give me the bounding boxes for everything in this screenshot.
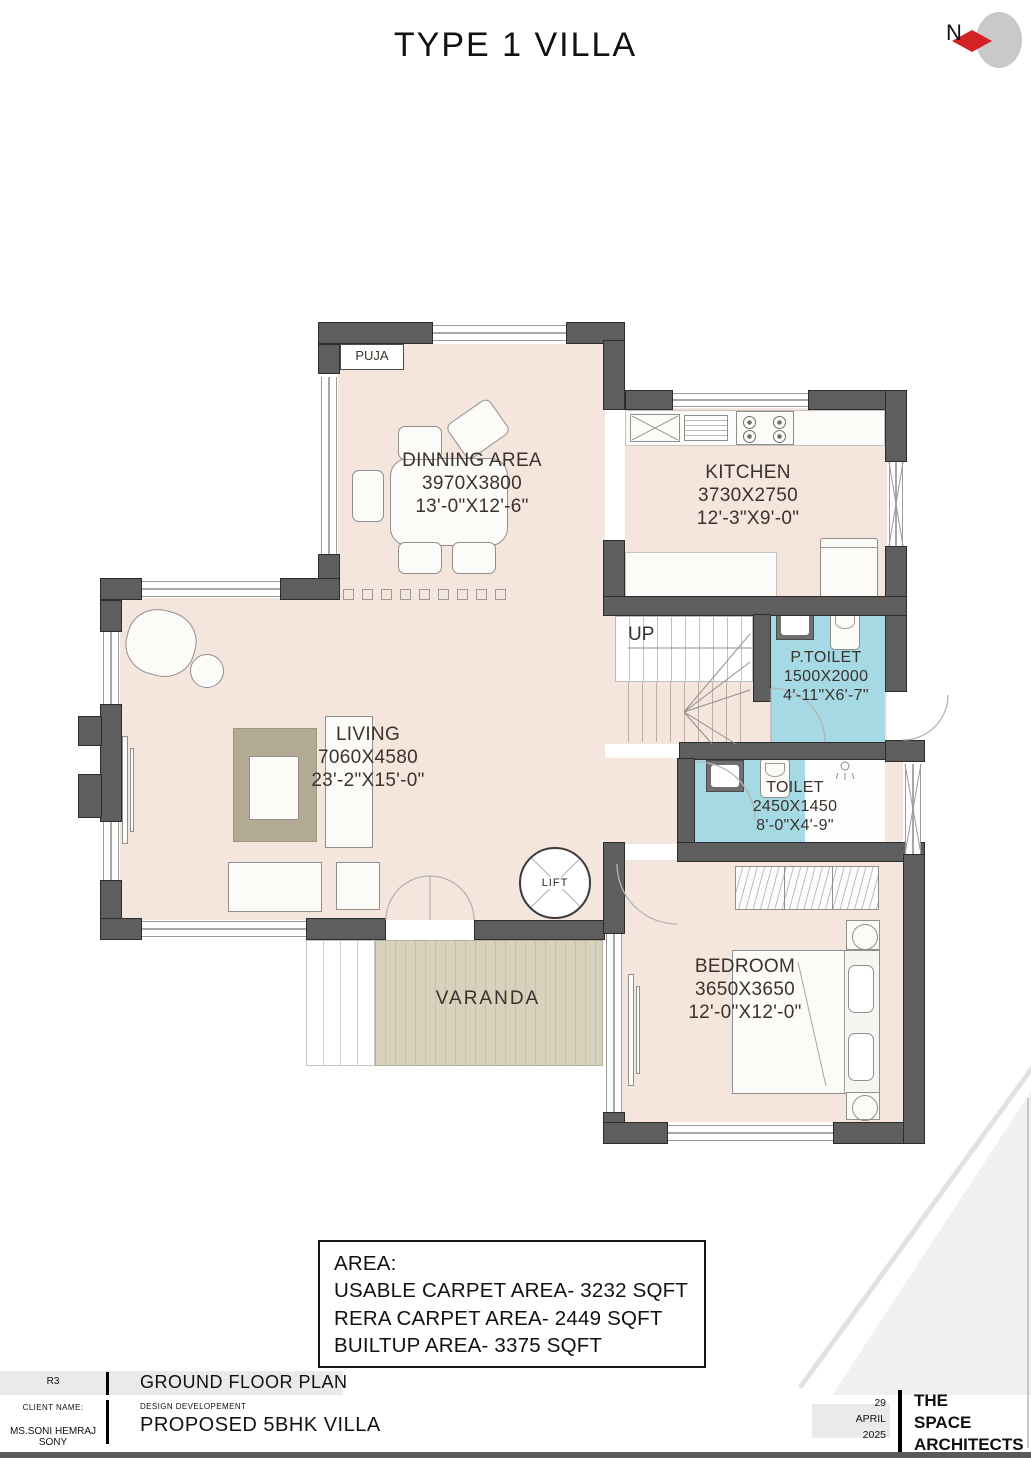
area-usable: USABLE CARPET AREA- 3232 SQFT	[334, 1277, 690, 1304]
lift[interactable]: LIFT	[519, 847, 591, 919]
wall	[318, 344, 340, 374]
table-circle	[852, 924, 878, 950]
room-label-puja: PUJA	[340, 348, 404, 363]
screen-square	[438, 589, 449, 600]
room-name: DINNING AREA	[352, 450, 592, 473]
room-name: KITCHEN	[638, 462, 858, 485]
tv-unit	[628, 974, 634, 1086]
wall	[603, 340, 625, 410]
wardrobe-divider	[784, 867, 785, 909]
window	[103, 822, 119, 880]
wall	[100, 578, 142, 600]
wall	[603, 596, 907, 616]
room-dim-ft: 8'-0"X4'-9"	[717, 816, 873, 835]
room-label-dinning: DINNING AREA 3970X3800 13'-0"X12'-6"	[352, 450, 592, 518]
wall-pillar	[78, 716, 102, 746]
wall	[885, 740, 925, 762]
door-arc	[903, 695, 948, 740]
room-label-toilet: TOILET 2450X1450 8'-0"X4'-9"	[717, 778, 873, 836]
wall	[306, 918, 386, 940]
room-name: LIVING	[268, 724, 468, 747]
wardrobe-divider	[832, 867, 833, 909]
room-dim-mm: 2450X1450	[717, 797, 873, 816]
page-title: TYPE 1 VILLA	[0, 26, 1031, 65]
kitchen-counter-lower	[625, 552, 777, 598]
room-dim-mm: 3650X3650	[642, 979, 848, 1002]
date-year: 2025	[800, 1428, 886, 1444]
room-name: BEDROOM	[642, 956, 848, 979]
window	[321, 377, 337, 554]
window	[142, 921, 306, 937]
stairs-lower-flight	[615, 682, 753, 742]
window	[606, 934, 622, 1112]
area-statement-box: AREA: USABLE CARPET AREA- 3232 SQFT RERA…	[318, 1240, 706, 1368]
client-name: MS.SONI HEMRAJ SONY	[0, 1426, 106, 1448]
drain-board	[684, 415, 728, 441]
screen-square	[457, 589, 468, 600]
tv-panel	[130, 748, 134, 832]
project-title: PROPOSED 5BHK VILLA	[140, 1414, 381, 1437]
screen-square	[476, 589, 487, 600]
screen-square	[495, 589, 506, 600]
bedside-table	[846, 1092, 880, 1120]
wc-cistern	[835, 615, 855, 629]
room-label-kitchen: KITCHEN 3730X2750 12'-3"X9'-0"	[638, 462, 858, 530]
stage-label: DESIGN DEVELOPEMENT	[140, 1402, 246, 1411]
screen-square	[362, 589, 373, 600]
room-dim-ft: 12'-0"X12'-0"	[642, 1002, 848, 1025]
sheet-bottom-bar	[0, 1452, 1031, 1458]
room-label-living: LIVING 7060X4580 23'-2"X15'-0"	[268, 724, 468, 792]
room-dim-mm: 7060X4580	[268, 747, 468, 770]
fridge-line	[821, 547, 877, 548]
window	[433, 325, 566, 341]
screen-square	[343, 589, 354, 600]
pillow	[848, 965, 874, 1013]
burner	[743, 430, 756, 443]
dining-chair	[452, 542, 496, 574]
area-heading: AREA:	[334, 1250, 690, 1277]
date-block: 29 APRIL 2025	[800, 1396, 886, 1443]
firm-line: THE	[914, 1390, 1031, 1412]
area-builtup: BUILTUP AREA- 3375 SQFT	[334, 1332, 690, 1359]
north-arrow-icon: N	[940, 8, 1030, 70]
wall	[885, 390, 907, 462]
window	[889, 462, 903, 546]
room-dim-mm: 3970X3800	[352, 473, 592, 496]
screen-square	[400, 589, 411, 600]
room-label-p-toilet: P.TOILET 1500X2000 4'-11"X6'-7"	[748, 648, 904, 706]
wall	[474, 920, 605, 940]
burner	[773, 430, 786, 443]
divider	[106, 1400, 109, 1444]
wall	[280, 578, 340, 600]
north-letter: N	[946, 20, 962, 46]
room-dim-ft: 23'-2"X15'-0"	[268, 770, 468, 793]
burner	[743, 416, 756, 429]
side-table	[336, 862, 380, 910]
screen-square	[419, 589, 430, 600]
window	[673, 393, 808, 407]
tv-panel	[636, 986, 640, 1074]
tv-unit	[122, 736, 128, 844]
basin-bowl	[781, 613, 809, 635]
room-name: P.TOILET	[748, 648, 904, 667]
sofa	[228, 862, 322, 912]
wall	[679, 742, 905, 760]
wc	[830, 610, 860, 650]
wall	[677, 758, 695, 844]
divider	[898, 1390, 902, 1452]
window	[668, 1125, 833, 1141]
bedside-table	[846, 920, 880, 950]
wall	[677, 842, 925, 862]
wall	[100, 918, 142, 940]
lift-label: LIFT	[539, 877, 572, 889]
wall	[625, 390, 673, 410]
drawing-title: GROUND FLOOR PLAN	[140, 1372, 348, 1393]
room-dim-mm: 3730X2750	[638, 485, 858, 508]
dining-chair	[398, 542, 442, 574]
firm-line: ARCHITECTS	[914, 1434, 1031, 1456]
stairs-up-label: UP	[628, 624, 654, 646]
drawing-sheet: TYPE 1 VILLA N	[0, 0, 1031, 1460]
pillow	[848, 1033, 874, 1081]
wc-cistern	[765, 763, 785, 777]
room-label-bedroom: BEDROOM 3650X3650 12'-0"X12'-0"	[642, 956, 848, 1024]
room-dim-ft: 13'-0"X12'-6"	[352, 496, 592, 519]
room-label-varanda: VARANDA	[398, 988, 578, 1011]
revision-code: R3	[0, 1376, 106, 1387]
divider	[106, 1372, 109, 1395]
wall	[318, 322, 433, 344]
date-month: APRIL	[800, 1412, 886, 1428]
room-dim-ft: 12'-3"X9'-0"	[638, 508, 858, 531]
client-label: CLIENT NAME:	[0, 1403, 106, 1412]
burner	[773, 416, 786, 429]
wall	[100, 704, 122, 822]
date-day: 29	[800, 1396, 886, 1412]
table-circle	[852, 1095, 878, 1121]
firm-line: SPACE	[914, 1412, 1031, 1434]
room-dim-ft: 4'-11"X6'-7"	[748, 686, 904, 705]
window	[142, 581, 280, 597]
room-dim-mm: 1500X2000	[748, 667, 904, 686]
kitchen-sink	[630, 414, 680, 442]
gas-stove	[736, 411, 794, 445]
wardrobe	[735, 866, 879, 910]
window	[905, 764, 921, 854]
room-name: TOILET	[717, 778, 873, 797]
area-rera: RERA CARPET AREA- 2449 SQFT	[334, 1305, 690, 1332]
wall	[903, 854, 925, 1144]
screen-square	[381, 589, 392, 600]
wall	[603, 842, 625, 934]
wall-pillar	[78, 774, 102, 818]
wall	[100, 600, 122, 632]
window	[103, 632, 119, 704]
wall	[603, 1122, 668, 1144]
round-side-table	[190, 654, 224, 688]
firm-name: THE SPACE ARCHITECTS	[914, 1390, 1031, 1455]
veranda-steps	[306, 940, 375, 1066]
fridge	[820, 538, 878, 598]
